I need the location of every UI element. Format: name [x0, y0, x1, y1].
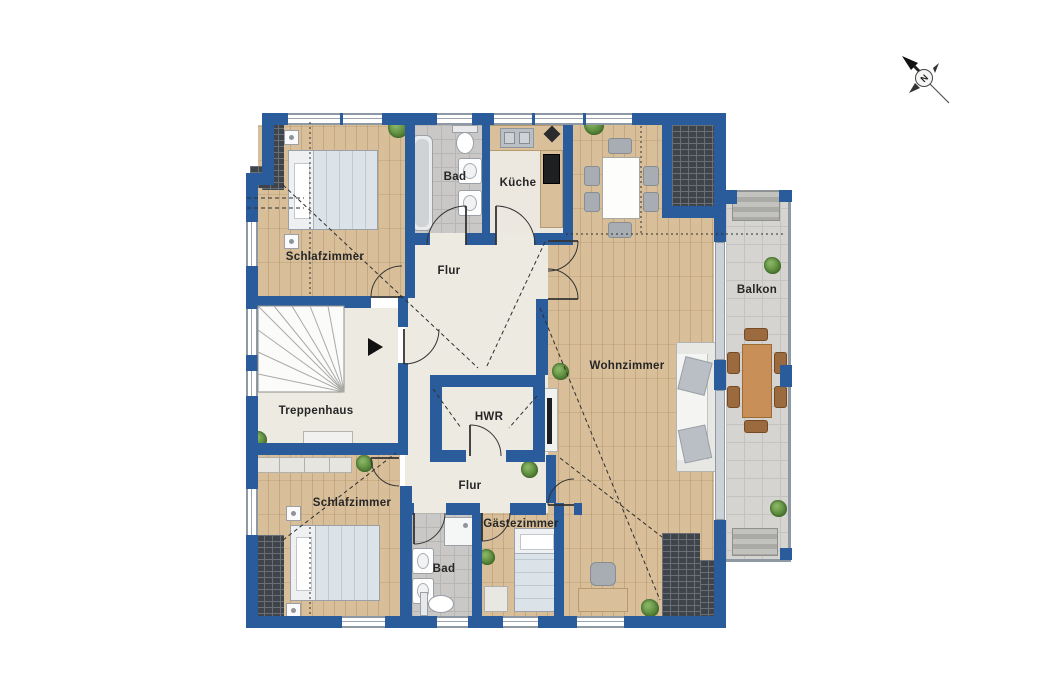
- wall-segment: [472, 513, 482, 616]
- balcony-bench: [732, 528, 778, 556]
- awning: [732, 191, 780, 221]
- washbasin: [412, 548, 434, 574]
- sofa-armrest: [677, 343, 717, 354]
- wall-segment: [780, 548, 792, 560]
- wall-segment: [714, 113, 726, 242]
- room-label-bad-2: Bad: [433, 563, 456, 575]
- single-bed: [514, 528, 558, 612]
- plant-icon: [764, 257, 781, 274]
- desk-chair: [590, 562, 616, 586]
- wall-segment: [405, 233, 430, 245]
- balcony-table: [742, 344, 772, 418]
- toilet: [428, 595, 454, 613]
- wall-segment: [430, 375, 442, 462]
- balcony-chair: [744, 328, 768, 341]
- window: [288, 113, 340, 125]
- wall-segment: [533, 375, 545, 462]
- wall-segment: [662, 206, 726, 218]
- sofa-armrest: [677, 460, 717, 471]
- plant-icon: [521, 461, 538, 478]
- desk: [578, 588, 628, 612]
- double-bed: [288, 150, 378, 230]
- wall-segment: [398, 363, 408, 455]
- balcony-chair: [727, 386, 740, 408]
- dining-table: [602, 157, 640, 219]
- nightstand: [284, 130, 299, 145]
- cooktop: [543, 154, 560, 184]
- window: [342, 616, 385, 628]
- window: [577, 616, 624, 628]
- toilet: [456, 132, 474, 154]
- roof-hatch-bottom-right: [662, 533, 700, 616]
- wall-segment: [726, 190, 737, 204]
- bed-pillow: [296, 537, 312, 591]
- room-label-kueche: Küche: [500, 177, 537, 189]
- balcony-chair: [727, 352, 740, 374]
- wall-segment: [563, 113, 573, 245]
- nightstand: [284, 234, 299, 249]
- wall-segment: [714, 520, 726, 628]
- wall-segment: [482, 113, 490, 233]
- window: [246, 309, 258, 355]
- glazed-wall: [715, 390, 725, 520]
- dining-chair: [608, 138, 632, 154]
- dining-chair: [584, 166, 600, 186]
- compass-north-label: N: [919, 73, 931, 85]
- window: [246, 371, 258, 396]
- wall-segment: [779, 190, 792, 202]
- bed-duvet: [315, 526, 379, 600]
- wall-segment: [400, 503, 414, 515]
- glazed-wall: [715, 242, 725, 360]
- room-label-balkon: Balkon: [737, 284, 777, 296]
- plant-icon: [641, 599, 659, 617]
- wall-segment: [401, 296, 408, 308]
- compass-icon: N: [902, 56, 949, 103]
- room-label-schlafzimmer-2: Schlafzimmer: [313, 497, 391, 509]
- double-bed: [290, 525, 380, 601]
- nightstand: [286, 506, 301, 521]
- bed-pillow: [294, 163, 310, 220]
- dining-chair: [643, 166, 659, 186]
- window: [343, 113, 382, 125]
- room-label-schlafzimmer-1: Schlafzimmer: [286, 251, 364, 263]
- room-label-wohnzimmer: Wohnzimmer: [590, 360, 665, 372]
- wall-segment: [510, 503, 546, 515]
- room-label-flur-2: Flur: [459, 480, 482, 492]
- roof-hatch-top-right: [672, 125, 714, 207]
- window: [246, 222, 258, 266]
- washbasin: [458, 190, 482, 216]
- wall-segment: [246, 296, 371, 308]
- plant-icon: [356, 455, 373, 472]
- kitchen-sink: [500, 128, 534, 148]
- dresser: [484, 586, 508, 612]
- wall-segment: [430, 450, 466, 462]
- window: [437, 616, 468, 628]
- wall-segment: [534, 233, 573, 245]
- balcony-chair: [774, 386, 787, 408]
- shower: [444, 517, 474, 546]
- room-label-treppenhaus: Treppenhaus: [279, 405, 354, 417]
- room-label-gaestezimmer: Gästezimmer: [483, 518, 559, 530]
- window: [586, 113, 632, 125]
- wall-segment: [574, 503, 582, 515]
- wall-segment: [546, 455, 556, 503]
- window: [494, 113, 532, 125]
- wall-segment: [405, 113, 415, 298]
- room-treppenhaus-floor: [258, 308, 398, 445]
- window: [503, 616, 538, 628]
- window: [246, 489, 258, 535]
- dining-chair: [608, 222, 632, 238]
- plant-icon: [770, 500, 787, 517]
- dining-chair: [643, 192, 659, 212]
- wall-segment: [430, 375, 545, 387]
- window: [535, 113, 583, 125]
- sofa: [676, 342, 718, 472]
- wall-segment: [780, 365, 792, 387]
- toilet-tank: [420, 592, 428, 616]
- dining-chair: [584, 192, 600, 212]
- floor-plan: N Schlafzimmer Bad Küche Flur Wohnzimmer…: [0, 0, 1037, 680]
- window: [437, 113, 472, 125]
- plant-icon: [552, 363, 569, 380]
- room-label-flur-1: Flur: [438, 265, 461, 277]
- wall-segment: [662, 125, 672, 218]
- wall-segment: [506, 450, 545, 462]
- room-label-bad-1: Bad: [444, 171, 467, 183]
- wall-segment: [246, 443, 408, 455]
- wall-segment: [714, 360, 726, 390]
- bed-duvet: [313, 151, 377, 229]
- wall-segment: [536, 299, 548, 375]
- bed-duvet: [515, 553, 557, 611]
- tv-icon: [547, 398, 552, 444]
- wall-segment: [246, 616, 724, 628]
- roof-hatch-bottom-left: [256, 535, 284, 616]
- balcony-chair: [744, 420, 768, 433]
- wall-segment: [466, 233, 496, 245]
- wardrobe: [254, 457, 352, 473]
- bed-pillow: [520, 534, 554, 550]
- room-label-hwr: HWR: [475, 411, 503, 423]
